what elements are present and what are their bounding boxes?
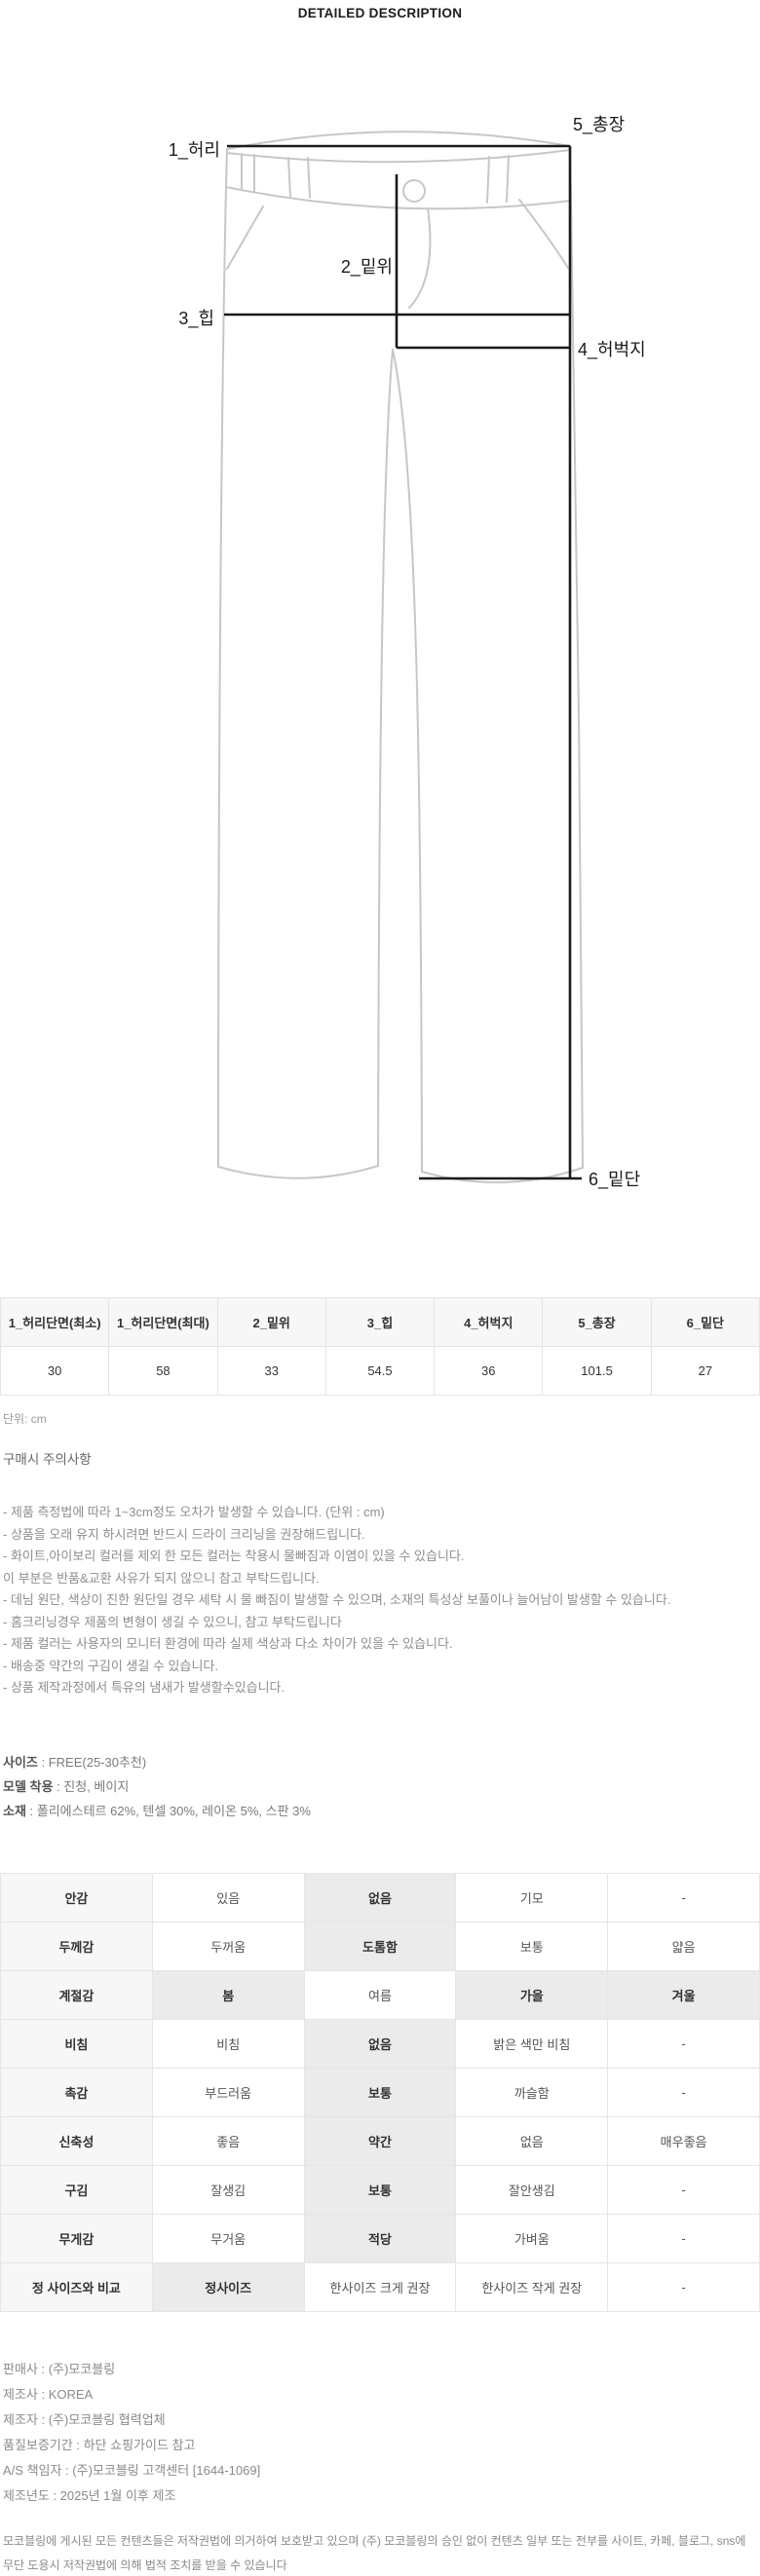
feature-label-cell: 비침: [1, 2020, 153, 2069]
pants-measurement-diagram: 1_허리 5_총장 2_밑위 3_힙 4_허벅지 6_밑단: [0, 0, 760, 1247]
label-waist: 1_허리: [169, 140, 220, 161]
product-detail-page: DETAILED DESCRIPTION: [0, 0, 760, 2576]
feature-option-cell: -: [608, 2166, 760, 2215]
purchase-note-line: - 배송중 약간의 구김이 생길 수 있습니다.: [3, 1656, 757, 1678]
material-label: 소재: [3, 1804, 26, 1818]
purchase-note-line: - 화이트,아이보리 컬러를 제외 한 모든 컬러는 착용시 물빠짐과 이염이 …: [3, 1546, 757, 1568]
seller-info-line: 판매사 : (주)모코블링: [3, 2357, 757, 2382]
feature-label-cell: 무게감: [1, 2215, 153, 2263]
purchase-note-line: - 데님 원단, 색상이 진한 원단일 경우 세탁 시 물 빠짐이 발생할 수 …: [3, 1589, 757, 1612]
feature-option-cell: 보통: [456, 1923, 608, 1971]
feature-option-cell: -: [608, 2020, 760, 2069]
seller-info-line: A/S 책임자 : (주)모코블링 고객센터 [1644-1069]: [3, 2458, 757, 2483]
feature-option-cell-selected: 정사이즈: [152, 2263, 304, 2312]
feature-option-cell: 얇음: [608, 1923, 760, 1971]
feature-option-cell: -: [608, 2215, 760, 2263]
size-table-header-cell: 1_허리단면(최대): [109, 1298, 217, 1347]
size-table-header-cell: 2_밑위: [217, 1298, 325, 1347]
feature-table-row: 계절감봄여름가을겨울: [1, 1971, 760, 2020]
feature-option-cell: 기모: [456, 1874, 608, 1923]
feature-option-cell-selected: 가을: [456, 1971, 608, 2020]
size-table-value-row: 30583354.536101.527: [1, 1347, 760, 1396]
size-table-header-cell: 4_허벅지: [435, 1298, 543, 1347]
pants-outline-drawing: [218, 131, 583, 1182]
feature-option-cell-selected: 적당: [304, 2215, 456, 2263]
feature-option-cell: -: [608, 2069, 760, 2117]
feature-label-cell: 신축성: [1, 2117, 153, 2166]
seller-info-line: 제조년도 : 2025년 1월 이후 제조: [3, 2483, 757, 2509]
button-icon: [403, 180, 425, 202]
feature-label-cell: 구김: [1, 2166, 153, 2215]
label-rise: 2_밑위: [341, 257, 393, 278]
feature-option-cell: 밝은 색만 비침: [456, 2020, 608, 2069]
purchase-note-line: - 상품 제작과정에서 특유의 냄새가 발생할수있습니다.: [3, 1677, 757, 1699]
feature-option-cell: 비침: [152, 2020, 304, 2069]
size-table-value-cell: 58: [109, 1347, 217, 1396]
size-table-header-row: 1_허리단면(최소)1_허리단면(최대)2_밑위3_힙4_허벅지5_총장6_밑단: [1, 1298, 760, 1347]
feature-option-cell: 까슬함: [456, 2069, 608, 2117]
feature-option-cell: 없음: [456, 2117, 608, 2166]
size-table-header-cell: 6_밑단: [651, 1298, 759, 1347]
feature-option-cell-selected: 없음: [304, 2020, 456, 2069]
seller-info-line: 품질보증기간 : 하단 쇼핑가이드 참고: [3, 2433, 757, 2458]
size-table-header-cell: 1_허리단면(최소): [1, 1298, 109, 1347]
product-info-material: 소재 : 폴리에스테르 62%, 텐셀 30%, 레이온 5%, 스판 3%: [3, 1799, 757, 1823]
purchase-note-line: 이 부분은 반품&교환 사유가 되지 않으니 참고 부탁드립니다.: [3, 1568, 757, 1590]
feature-option-cell: 부드러움: [152, 2069, 304, 2117]
feature-label-cell: 안감: [1, 1874, 153, 1923]
feature-option-cell: 잘생김: [152, 2166, 304, 2215]
feature-option-cell: 두꺼움: [152, 1923, 304, 1971]
feature-table-row: 안감있음없음기모-: [1, 1874, 760, 1923]
feature-option-cell-selected: 겨울: [608, 1971, 760, 2020]
copyright-text: 모코블링에 게시된 모든 컨텐츠들은 저작권법에 의거하여 보호받고 있으며 (…: [3, 2529, 759, 2576]
feature-option-cell-selected: 도톰함: [304, 1923, 456, 1971]
feature-option-cell: 매우좋음: [608, 2117, 760, 2166]
size-table: 1_허리단면(최소)1_허리단면(최대)2_밑위3_힙4_허벅지5_총장6_밑단…: [0, 1297, 760, 1396]
size-table-value-cell: 27: [651, 1347, 759, 1396]
size-table-value-cell: 54.5: [325, 1347, 434, 1396]
feature-option-cell: 있음: [152, 1874, 304, 1923]
feature-option-cell: 여름: [304, 1971, 456, 2020]
model-value: : 진청, 베이지: [53, 1779, 129, 1794]
feature-option-cell: 무거움: [152, 2215, 304, 2263]
measurement-lines: [224, 146, 582, 1178]
feature-label-cell: 계절감: [1, 1971, 153, 2020]
feature-option-cell: 가벼움: [456, 2215, 608, 2263]
feature-option-cell-selected: 보통: [304, 2069, 456, 2117]
size-table-header-cell: 3_힙: [325, 1298, 434, 1347]
feature-option-cell-selected: 보통: [304, 2166, 456, 2215]
label-thigh: 4_허벅지: [578, 340, 646, 360]
feature-table-row: 비침비침없음밝은 색만 비침-: [1, 2020, 760, 2069]
feature-table-row: 촉감부드러움보통까슬함-: [1, 2069, 760, 2117]
feature-label-cell: 촉감: [1, 2069, 153, 2117]
label-length: 5_총장: [573, 115, 625, 135]
label-hip: 3_힙: [178, 309, 214, 329]
feature-table-row: 두께감두꺼움도톰함보통얇음: [1, 1923, 760, 1971]
feature-table-row: 정 사이즈와 비교정사이즈한사이즈 크게 권장한사이즈 작게 권장-: [1, 2263, 760, 2312]
size-label: 사이즈: [3, 1755, 38, 1770]
product-info-model: 모델 착용 : 진청, 베이지: [3, 1774, 757, 1799]
feature-option-cell: -: [608, 2263, 760, 2312]
size-table-value-cell: 30: [1, 1347, 109, 1396]
purchase-note-line: - 제품 측정법에 따라 1~3cm정도 오차가 발생할 수 있습니다. (단위…: [3, 1502, 757, 1524]
feature-option-cell: 잘안생김: [456, 2166, 608, 2215]
feature-option-cell-selected: 약간: [304, 2117, 456, 2166]
purchase-notes-section: 구매시 주의사항 - 제품 측정법에 따라 1~3cm정도 오차가 발생할 수 …: [3, 1448, 757, 1699]
feature-option-cell: 좋음: [152, 2117, 304, 2166]
size-table-header-cell: 5_총장: [543, 1298, 651, 1347]
product-info-size: 사이즈 : FREE(25-30추천): [3, 1750, 757, 1774]
feature-table-row: 신축성좋음약간없음매우좋음: [1, 2117, 760, 2166]
material-value: : 폴리에스테르 62%, 텐셀 30%, 레이온 5%, 스판 3%: [26, 1804, 311, 1818]
purchase-notes-list: - 제품 측정법에 따라 1~3cm정도 오차가 발생할 수 있습니다. (단위…: [3, 1502, 757, 1699]
purchase-note-line: - 상품을 오래 유지 하시려면 반드시 드라이 크리닝을 권장해드립니다.: [3, 1524, 757, 1547]
model-label: 모델 착용: [3, 1779, 53, 1794]
purchase-notes-title: 구매시 주의사항: [3, 1448, 757, 1468]
size-table-value-cell: 101.5: [543, 1347, 651, 1396]
feature-table: 안감있음없음기모-두께감두꺼움도톰함보통얇음계절감봄여름가을겨울비침비침없음밝은…: [0, 1873, 760, 2312]
feature-table-row: 무게감무거움적당가벼움-: [1, 2215, 760, 2263]
unit-note: 단위: cm: [3, 1410, 47, 1427]
seller-info-line: 제조자 : (주)모코블링 협력업체: [3, 2408, 757, 2433]
feature-table-row: 구김잘생김보통잘안생김-: [1, 2166, 760, 2215]
feature-option-cell: 한사이즈 크게 권장: [304, 2263, 456, 2312]
size-table-value-cell: 33: [217, 1347, 325, 1396]
feature-option-cell-selected: 봄: [152, 1971, 304, 2020]
feature-option-cell-selected: 없음: [304, 1874, 456, 1923]
feature-label-cell: 두께감: [1, 1923, 153, 1971]
purchase-note-line: - 홈크리닝경우 제품의 변형이 생길 수 있으니, 참고 부탁드립니다: [3, 1612, 757, 1634]
product-info-section: 사이즈 : FREE(25-30추천) 모델 착용 : 진청, 베이지 소재 :…: [3, 1750, 757, 1823]
purchase-note-line: - 제품 컬러는 사용자의 모니터 환경에 따라 실제 색상과 다소 차이가 있…: [3, 1633, 757, 1656]
feature-option-cell: 한사이즈 작게 권장: [456, 2263, 608, 2312]
feature-label-cell: 정 사이즈와 비교: [1, 2263, 153, 2312]
seller-info-section: 판매사 : (주)모코블링제조사 : KOREA제조자 : (주)모코블링 협력…: [3, 2357, 757, 2509]
label-hem: 6_밑단: [589, 1170, 640, 1190]
size-value: : FREE(25-30추천): [38, 1755, 146, 1770]
feature-option-cell: -: [608, 1874, 760, 1923]
seller-info-line: 제조사 : KOREA: [3, 2382, 757, 2408]
size-table-value-cell: 36: [435, 1347, 543, 1396]
